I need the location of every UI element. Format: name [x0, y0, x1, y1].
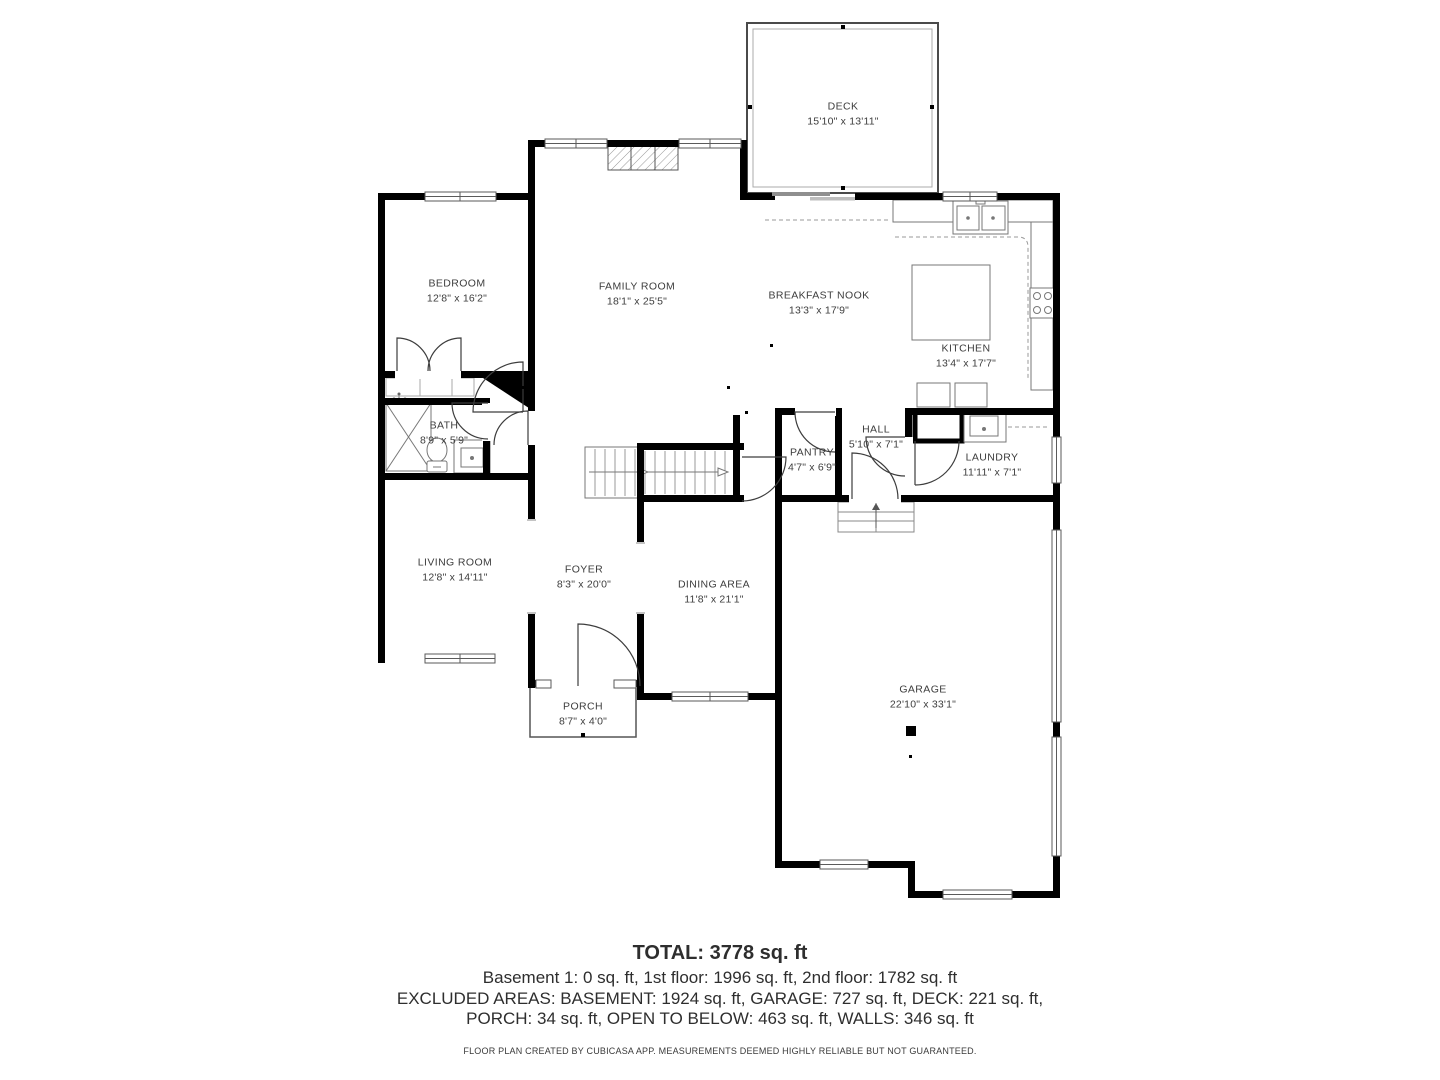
room-label-pantry: PANTRY 4'7" x 6'9": [788, 445, 836, 474]
disclaimer-text: FLOOR PLAN CREATED BY CUBICASA APP. MEAS…: [0, 1046, 1440, 1056]
room-dims: 12'8" x 16'2": [427, 291, 487, 306]
room-label-garage: GARAGE 22'10" x 33'1": [890, 682, 956, 711]
excluded-areas-line-2: PORCH: 34 sq. ft, OPEN TO BELOW: 463 sq.…: [0, 1009, 1440, 1030]
window: [425, 192, 496, 201]
room-name: DECK: [807, 99, 879, 114]
room-name: PANTRY: [788, 445, 836, 460]
room-label-hall: HALL 5'10" x 7'1": [849, 422, 903, 451]
room-label-bath: BATH 8'9" x 5'9": [420, 418, 468, 447]
room-label-bedroom: BEDROOM 12'8" x 16'2": [427, 276, 487, 305]
room-label-porch: PORCH 8'7" x 4'0": [559, 699, 607, 728]
room-label-kitchen: KITCHEN 13'4" x 17'7": [936, 341, 996, 370]
room-label-family-room: FAMILY ROOM 18'1" x 25'5": [599, 279, 675, 308]
laundry-door: [915, 441, 959, 485]
room-label-living-room: LIVING ROOM 12'8" x 14'11": [418, 555, 492, 584]
window: [425, 654, 495, 663]
room-label-foyer: FOYER 8'3" x 20'0": [557, 562, 611, 591]
room-dims: 18'1" x 25'5": [599, 294, 675, 309]
room-name: BEDROOM: [427, 276, 487, 291]
walls-layer: [378, 140, 1060, 898]
room-dims: 11'11" x 7'1": [963, 465, 1022, 480]
hall-garage-door: [852, 453, 898, 499]
garage-post: [906, 726, 916, 736]
marker-dots: [380, 299, 912, 758]
floor-areas-line: Basement 1: 0 sq. ft, 1st floor: 1996 sq…: [0, 968, 1440, 989]
room-dims: 13'3" x 17'9": [768, 303, 869, 318]
room-dims: 12'8" x 14'11": [418, 570, 492, 585]
hallway-door: [494, 411, 528, 445]
room-label-breakfast-nook: BREAKFAST NOOK 13'3" x 17'9": [768, 288, 869, 317]
room-label-deck: DECK 15'10" x 13'11": [807, 99, 879, 128]
window: [943, 192, 997, 201]
window: [820, 860, 868, 869]
room-dims: 5'10" x 7'1": [849, 437, 903, 452]
window: [1052, 530, 1061, 722]
total-area: TOTAL: 3778 sq. ft: [0, 942, 1440, 965]
room-dims: 8'9" x 5'9": [420, 433, 468, 448]
window: [943, 890, 1012, 899]
room-dims: 8'3" x 20'0": [557, 577, 611, 592]
room-name: PORCH: [559, 699, 607, 714]
window: [536, 680, 551, 688]
area-summary: TOTAL: 3778 sq. ft Basement 1: 0 sq. ft,…: [0, 942, 1440, 1056]
closet-door-right: [428, 338, 461, 371]
garage-entry-steps: [838, 502, 914, 532]
room-dims: 22'10" x 33'1": [890, 697, 956, 712]
window: [1052, 737, 1061, 856]
front-door: [578, 624, 640, 686]
room-name: DINING AREA: [678, 577, 750, 592]
window: [614, 680, 636, 688]
room-name: FAMILY ROOM: [599, 279, 675, 294]
room-name: BREAKFAST NOOK: [768, 288, 869, 303]
room-dims: 13'4" x 17'7": [936, 356, 996, 371]
closet-door-left: [397, 338, 430, 371]
room-name: BATH: [420, 418, 468, 433]
window: [679, 139, 741, 148]
room-name: LAUNDRY: [963, 450, 1022, 465]
window: [672, 692, 748, 701]
room-name: HALL: [849, 422, 903, 437]
room-dims: 4'7" x 6'9": [788, 460, 836, 475]
room-name: FOYER: [557, 562, 611, 577]
room-label-dining-area: DINING AREA 11'8" x 21'1": [678, 577, 750, 606]
laundry-fixtures: [915, 411, 1048, 442]
room-name: GARAGE: [890, 682, 956, 697]
windows: [425, 139, 1061, 899]
window: [545, 139, 607, 148]
window: [1052, 437, 1061, 483]
fireplace: [608, 143, 678, 170]
room-dims: 11'8" x 21'1": [678, 592, 750, 607]
staircase: [585, 447, 728, 498]
floorplan-drawing: [0, 0, 1440, 1080]
room-dims: 8'7" x 4'0": [559, 714, 607, 729]
excluded-areas-line-1: EXCLUDED AREAS: BASEMENT: 1924 sq. ft, G…: [0, 989, 1440, 1010]
room-label-laundry: LAUNDRY 11'11" x 7'1": [963, 450, 1022, 479]
room-name: LIVING ROOM: [418, 555, 492, 570]
room-name: KITCHEN: [936, 341, 996, 356]
floorplan-page: DECK 15'10" x 13'11" BEDROOM 12'8" x 16'…: [0, 0, 1440, 1080]
room-dims: 15'10" x 13'11": [807, 114, 879, 129]
